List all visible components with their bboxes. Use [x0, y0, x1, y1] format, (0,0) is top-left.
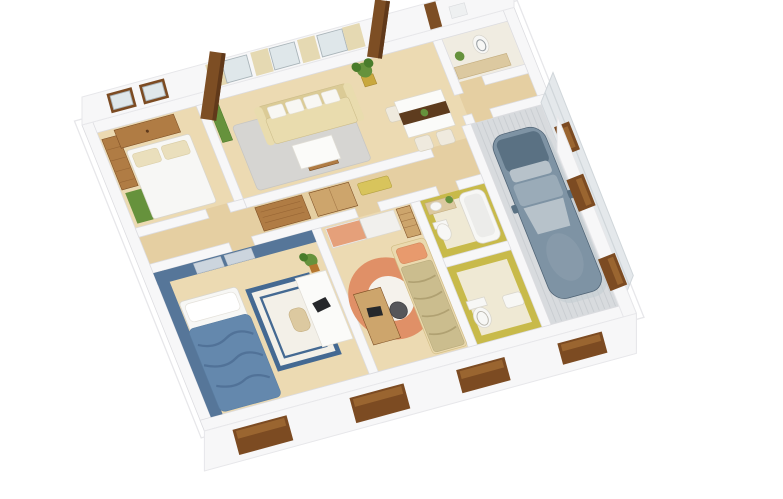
screenshot-root	[0, 0, 783, 499]
house-3d-render	[0, 0, 783, 499]
